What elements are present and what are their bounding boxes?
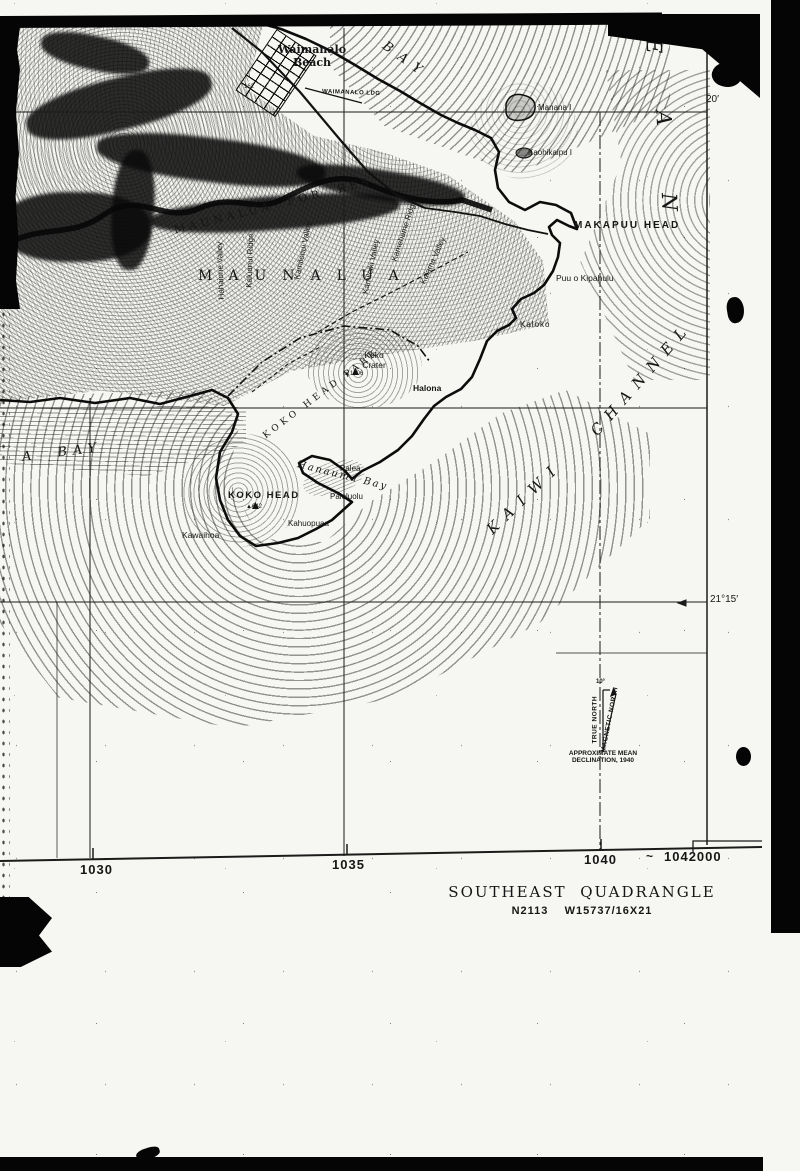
scan-artifact-left-speckle — [0, 309, 10, 901]
declination-true-north: TRUE NORTH — [591, 692, 598, 748]
label-koko-head: KOKO HEAD — [228, 491, 300, 502]
label-kawaihoa: Kawaihoa — [182, 531, 219, 541]
label-ocean-letter-n: N — [657, 192, 682, 212]
label-paioluolu: Paioluolu — [330, 492, 363, 501]
label-halona: Halona — [413, 384, 441, 394]
label-latitude-20: 20′ — [706, 94, 719, 106]
scan-artifact-right-bar — [771, 0, 800, 933]
label-kahuopuaa: Kahuopuaa — [288, 519, 329, 528]
grid-tick-1040: 1040 — [584, 853, 617, 868]
label-koko-head-elevation: ▲642 — [246, 504, 262, 511]
scan-artifact-ink-blob-3 — [736, 747, 751, 766]
grid-tick-1035: 1035 — [332, 858, 365, 873]
grid-tick-1042000: 1042000 — [664, 850, 722, 865]
label-makapuu-head: MAKAPUU HEAD — [574, 220, 680, 232]
label-kaloko: Kaloko — [520, 320, 550, 329]
label-ocean-letter-a: A — [651, 110, 676, 126]
label-puu-o-kipahulu: Puu o Kipahulu — [556, 274, 614, 284]
sheet-id: N2113 W15737/16X21 — [448, 905, 716, 918]
scan-artifact-bottom-band — [0, 1157, 763, 1171]
grid-ticks — [93, 839, 601, 859]
map-linework — [0, 0, 800, 880]
grid-tick-1030: 1030 — [80, 863, 113, 878]
label-manana-island: Manana I — [538, 103, 571, 112]
label-latitude-21-15: 21°15′ — [710, 594, 738, 606]
latitude-arrow — [678, 600, 686, 606]
label-maunalua: MAUNALUA — [198, 268, 415, 284]
manana-island — [506, 94, 535, 120]
scan-artifact-left-blob — [0, 897, 52, 967]
grid-tick-tilde: ~ — [646, 850, 653, 864]
scanned-map-page: Waimanalo Beach BAY WAIMANALO LDG Manana… — [0, 0, 800, 1171]
declination-angle: 10° — [596, 679, 605, 686]
label-kaohikaipu-island: Kaohikaipu I — [528, 148, 572, 157]
declination-caption: APPROXIMATE MEAN DECLINATION, 1940 — [556, 750, 650, 765]
trail — [252, 346, 322, 392]
quadrangle-title: SOUTHEAST QUADRANGLE — [448, 884, 716, 901]
